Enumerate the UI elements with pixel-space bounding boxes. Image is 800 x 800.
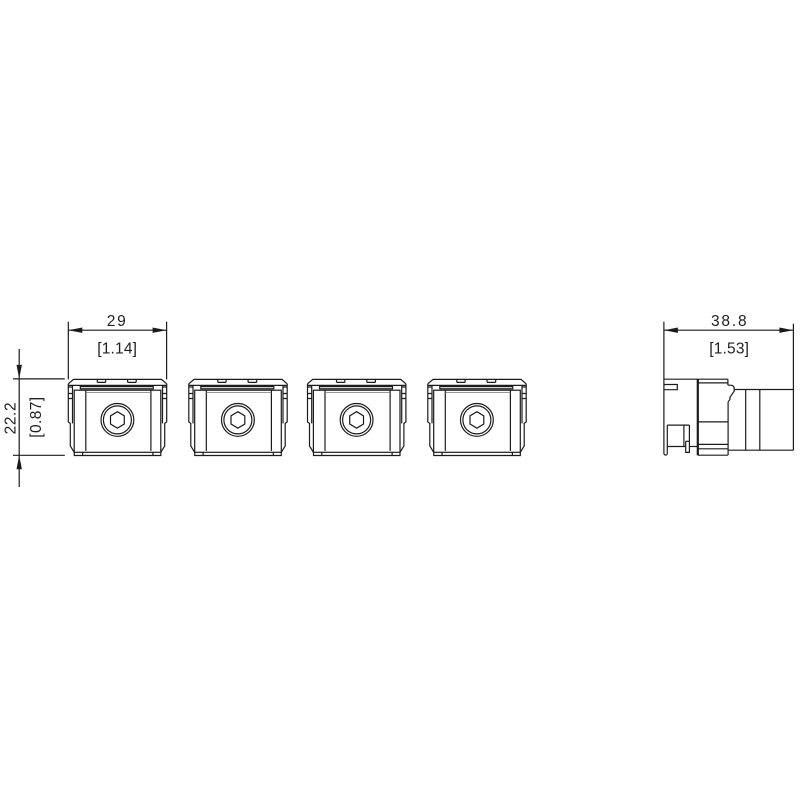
svg-text:[1.53]: [1.53] [709,340,749,357]
svg-text:29: 29 [107,313,128,330]
svg-text:22.2: 22.2 [2,402,19,435]
svg-text:[1.14]: [1.14] [97,340,137,357]
svg-text:[0.87]: [0.87] [28,397,45,438]
svg-text:38.8: 38.8 [711,313,748,330]
